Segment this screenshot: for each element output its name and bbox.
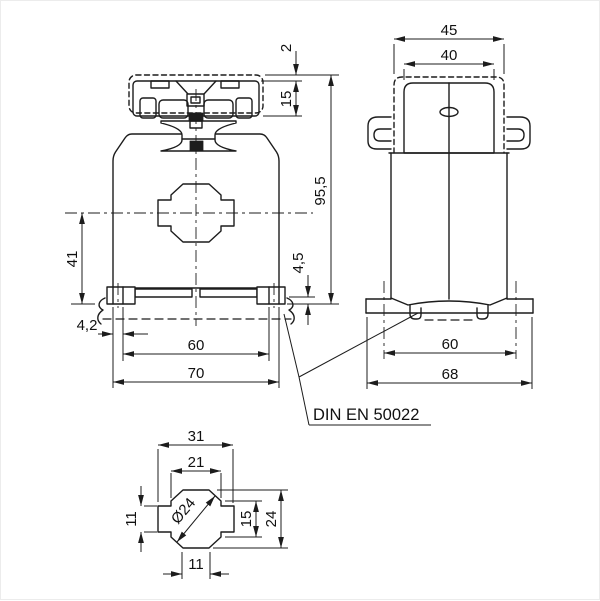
dim-detail-inner-height: 15 <box>238 511 255 528</box>
dim-front-cover-protrusion: 2 <box>278 44 295 52</box>
din-standard-label: DIN EN 50022 <box>313 406 419 424</box>
break-line-right <box>287 298 294 324</box>
dim-front-center-to-base: 41 <box>64 251 81 268</box>
dim-front-overall-height: 95,5 <box>312 176 329 205</box>
dim-side-cap-width: 40 <box>441 47 458 64</box>
mounting-ear-left <box>368 117 391 149</box>
dim-front-rail-clip-span: 60 <box>188 337 205 354</box>
drawing-canvas: 2 15 95,5 41 4,5 4,2 60 70 45 40 60 68 3… <box>0 0 600 600</box>
rail-block-right <box>257 287 285 304</box>
dim-front-rail-seat-depth: 4,5 <box>290 253 307 274</box>
dim-detail-band-height: 11 <box>123 511 140 527</box>
dim-front-overall-width: 70 <box>188 365 205 382</box>
dim-detail-outer-height: 24 <box>263 511 280 528</box>
side-view <box>366 77 533 320</box>
break-line-left <box>98 298 105 324</box>
mounting-ear-right <box>507 117 530 149</box>
dim-front-slot-width: 4,2 <box>77 317 98 334</box>
dim-side-base-width: 68 <box>442 366 459 383</box>
technical-drawing: 2 15 95,5 41 4,5 4,2 60 70 45 40 60 68 3… <box>1 1 600 601</box>
dim-detail-upper-width: 21 <box>188 454 205 471</box>
rail-bar-left <box>135 289 192 297</box>
rail-hook-right <box>477 305 488 319</box>
clamp-screw-bottom <box>190 141 203 151</box>
leader-line <box>299 313 418 377</box>
leader-line <box>299 377 309 425</box>
dim-detail-tab-width: 11 <box>188 556 204 573</box>
rail-block-left <box>107 287 135 304</box>
rail-bar-right <box>200 289 257 297</box>
dim-front-terminal-height: 15 <box>278 91 295 108</box>
dim-detail-outer-width: 31 <box>188 428 205 445</box>
dim-side-cover-width: 45 <box>441 22 458 39</box>
dim-side-rail-clip-span: 60 <box>442 336 459 353</box>
